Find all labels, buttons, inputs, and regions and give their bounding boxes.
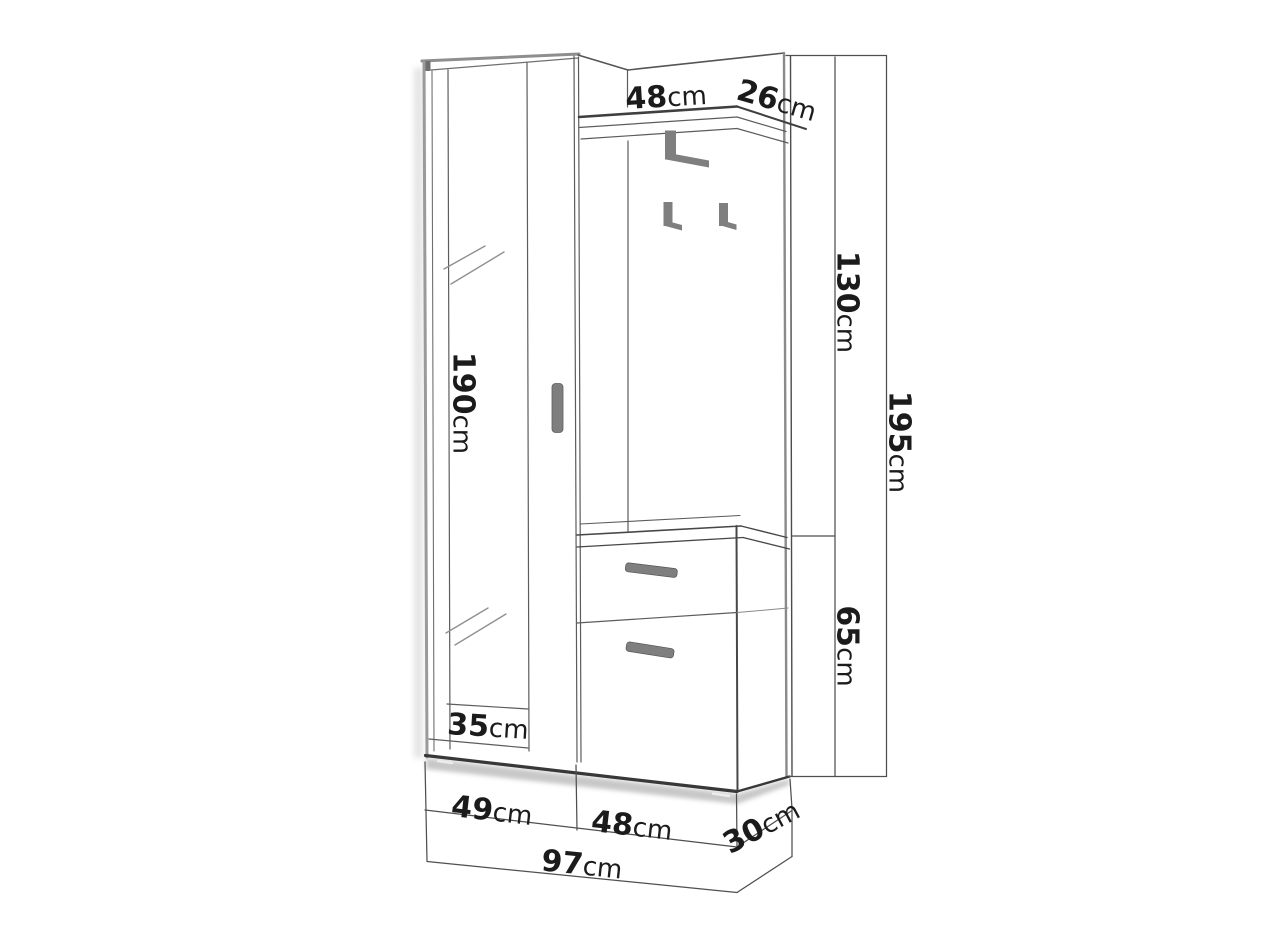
shoe-cabinet — [577, 516, 790, 792]
shelf-bottom-edge — [581, 129, 737, 140]
wardrobe-top-depth-edge — [578, 55, 628, 70]
label-total-width: 97cm — [540, 843, 625, 886]
panel-right-inner-edge — [791, 56, 793, 776]
mirror-mark-bottom-2 — [455, 614, 506, 645]
shelf-depth-bottom-edge — [737, 129, 788, 144]
cabinet-top-front-lower-edge — [577, 538, 743, 548]
wardrobe-left-inner-edge — [432, 71, 434, 751]
dim-line-97-depth-return — [737, 857, 792, 893]
cabinet-right-front-edge — [737, 526, 738, 791]
wardrobe-right-side-edge — [579, 57, 582, 762]
cabinet-top-depth-upper-edge — [741, 526, 787, 538]
label-cabinet-height: 65cm — [830, 605, 865, 686]
drawer-divider-side-line — [738, 608, 789, 613]
label-wardrobe-depth: 35cm — [446, 707, 529, 747]
shelf-front-edge — [579, 117, 737, 128]
label-shelf-depth: 26cm — [733, 73, 821, 129]
drawer-handle-bottom — [626, 642, 675, 659]
coat-hook-large-arm — [666, 153, 709, 168]
label-mirror-door-height: 190cm — [446, 352, 481, 454]
diagram-canvas: 48cm 26cm 190cm 130cm 195cm 65cm 35cm 49… — [0, 0, 1268, 951]
label-cabinet-width: 48cm — [589, 804, 674, 848]
dim-ext-bottom-middle — [576, 765, 577, 830]
panel-top-edge — [628, 53, 784, 70]
coat-hook-small-right — [719, 203, 737, 230]
panel-right-outer-edge — [784, 53, 787, 776]
mirror-mark-top-2 — [451, 252, 504, 284]
label-wardrobe-width: 49cm — [449, 789, 534, 833]
cabinet-top-back-edge — [580, 516, 740, 525]
label-hook-panel-height: 130cm — [830, 251, 865, 353]
hook-panel — [628, 53, 793, 776]
cabinet-top-front-upper-edge — [577, 526, 741, 535]
wardrobe-door-handle — [552, 384, 563, 433]
mirror-mark-top-1 — [444, 246, 485, 269]
coat-hook-small-left-foot — [664, 220, 683, 231]
furniture-dimension-diagram: 48cm 26cm 190cm 130cm 195cm 65cm 35cm 49… — [0, 0, 1268, 951]
label-shelf-width: 48cm — [624, 77, 707, 117]
furniture-outline — [422, 53, 806, 796]
drawer-divider-line — [577, 613, 737, 624]
wardrobe-left-outer-edge — [424, 62, 427, 757]
dim-ext-bottom-left — [425, 762, 427, 861]
wardrobe-right-front-edge — [574, 56, 577, 762]
drawer-handle-top — [625, 563, 678, 578]
cabinet-top-depth-lower-edge — [743, 538, 790, 550]
label-total-height: 195cm — [882, 391, 917, 493]
coat-hook-small-left — [664, 202, 683, 231]
coat-hook-large — [665, 131, 709, 168]
left-edge-shadow — [414, 68, 423, 758]
mirror-door-right-edge — [527, 63, 529, 751]
